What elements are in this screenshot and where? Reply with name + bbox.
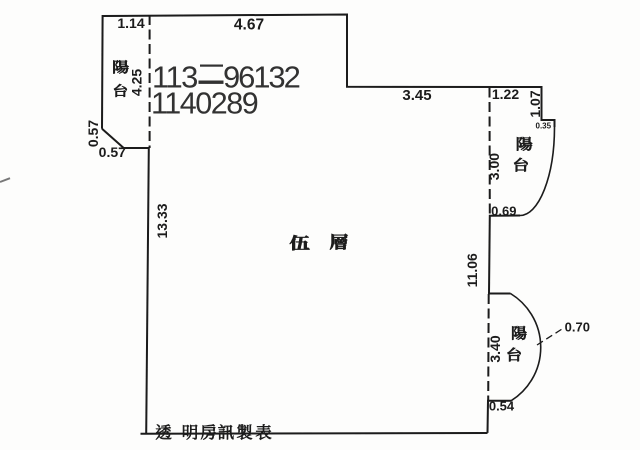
svg-text:11.06: 11.06 bbox=[464, 253, 480, 287]
svg-text:3.00: 3.00 bbox=[486, 153, 502, 180]
svg-text:1.07: 1.07 bbox=[527, 90, 543, 117]
svg-text:4.67: 4.67 bbox=[234, 16, 264, 33]
svg-text:0.57: 0.57 bbox=[85, 120, 101, 147]
svg-text:0.69: 0.69 bbox=[491, 204, 516, 219]
svg-text:0.57: 0.57 bbox=[99, 144, 126, 160]
svg-text:3.45: 3.45 bbox=[402, 87, 431, 104]
svg-text:1.14: 1.14 bbox=[117, 15, 144, 31]
svg-text:0.70: 0.70 bbox=[565, 320, 590, 335]
svg-text:13.33: 13.33 bbox=[154, 203, 170, 238]
svg-text:3.40: 3.40 bbox=[487, 335, 503, 362]
svg-text:0.35: 0.35 bbox=[536, 121, 552, 130]
svg-text:1.22: 1.22 bbox=[492, 86, 519, 102]
svg-text:0.54: 0.54 bbox=[489, 399, 515, 414]
svg-text:4.25: 4.25 bbox=[129, 69, 145, 96]
svg-text:1140289: 1140289 bbox=[151, 87, 258, 121]
